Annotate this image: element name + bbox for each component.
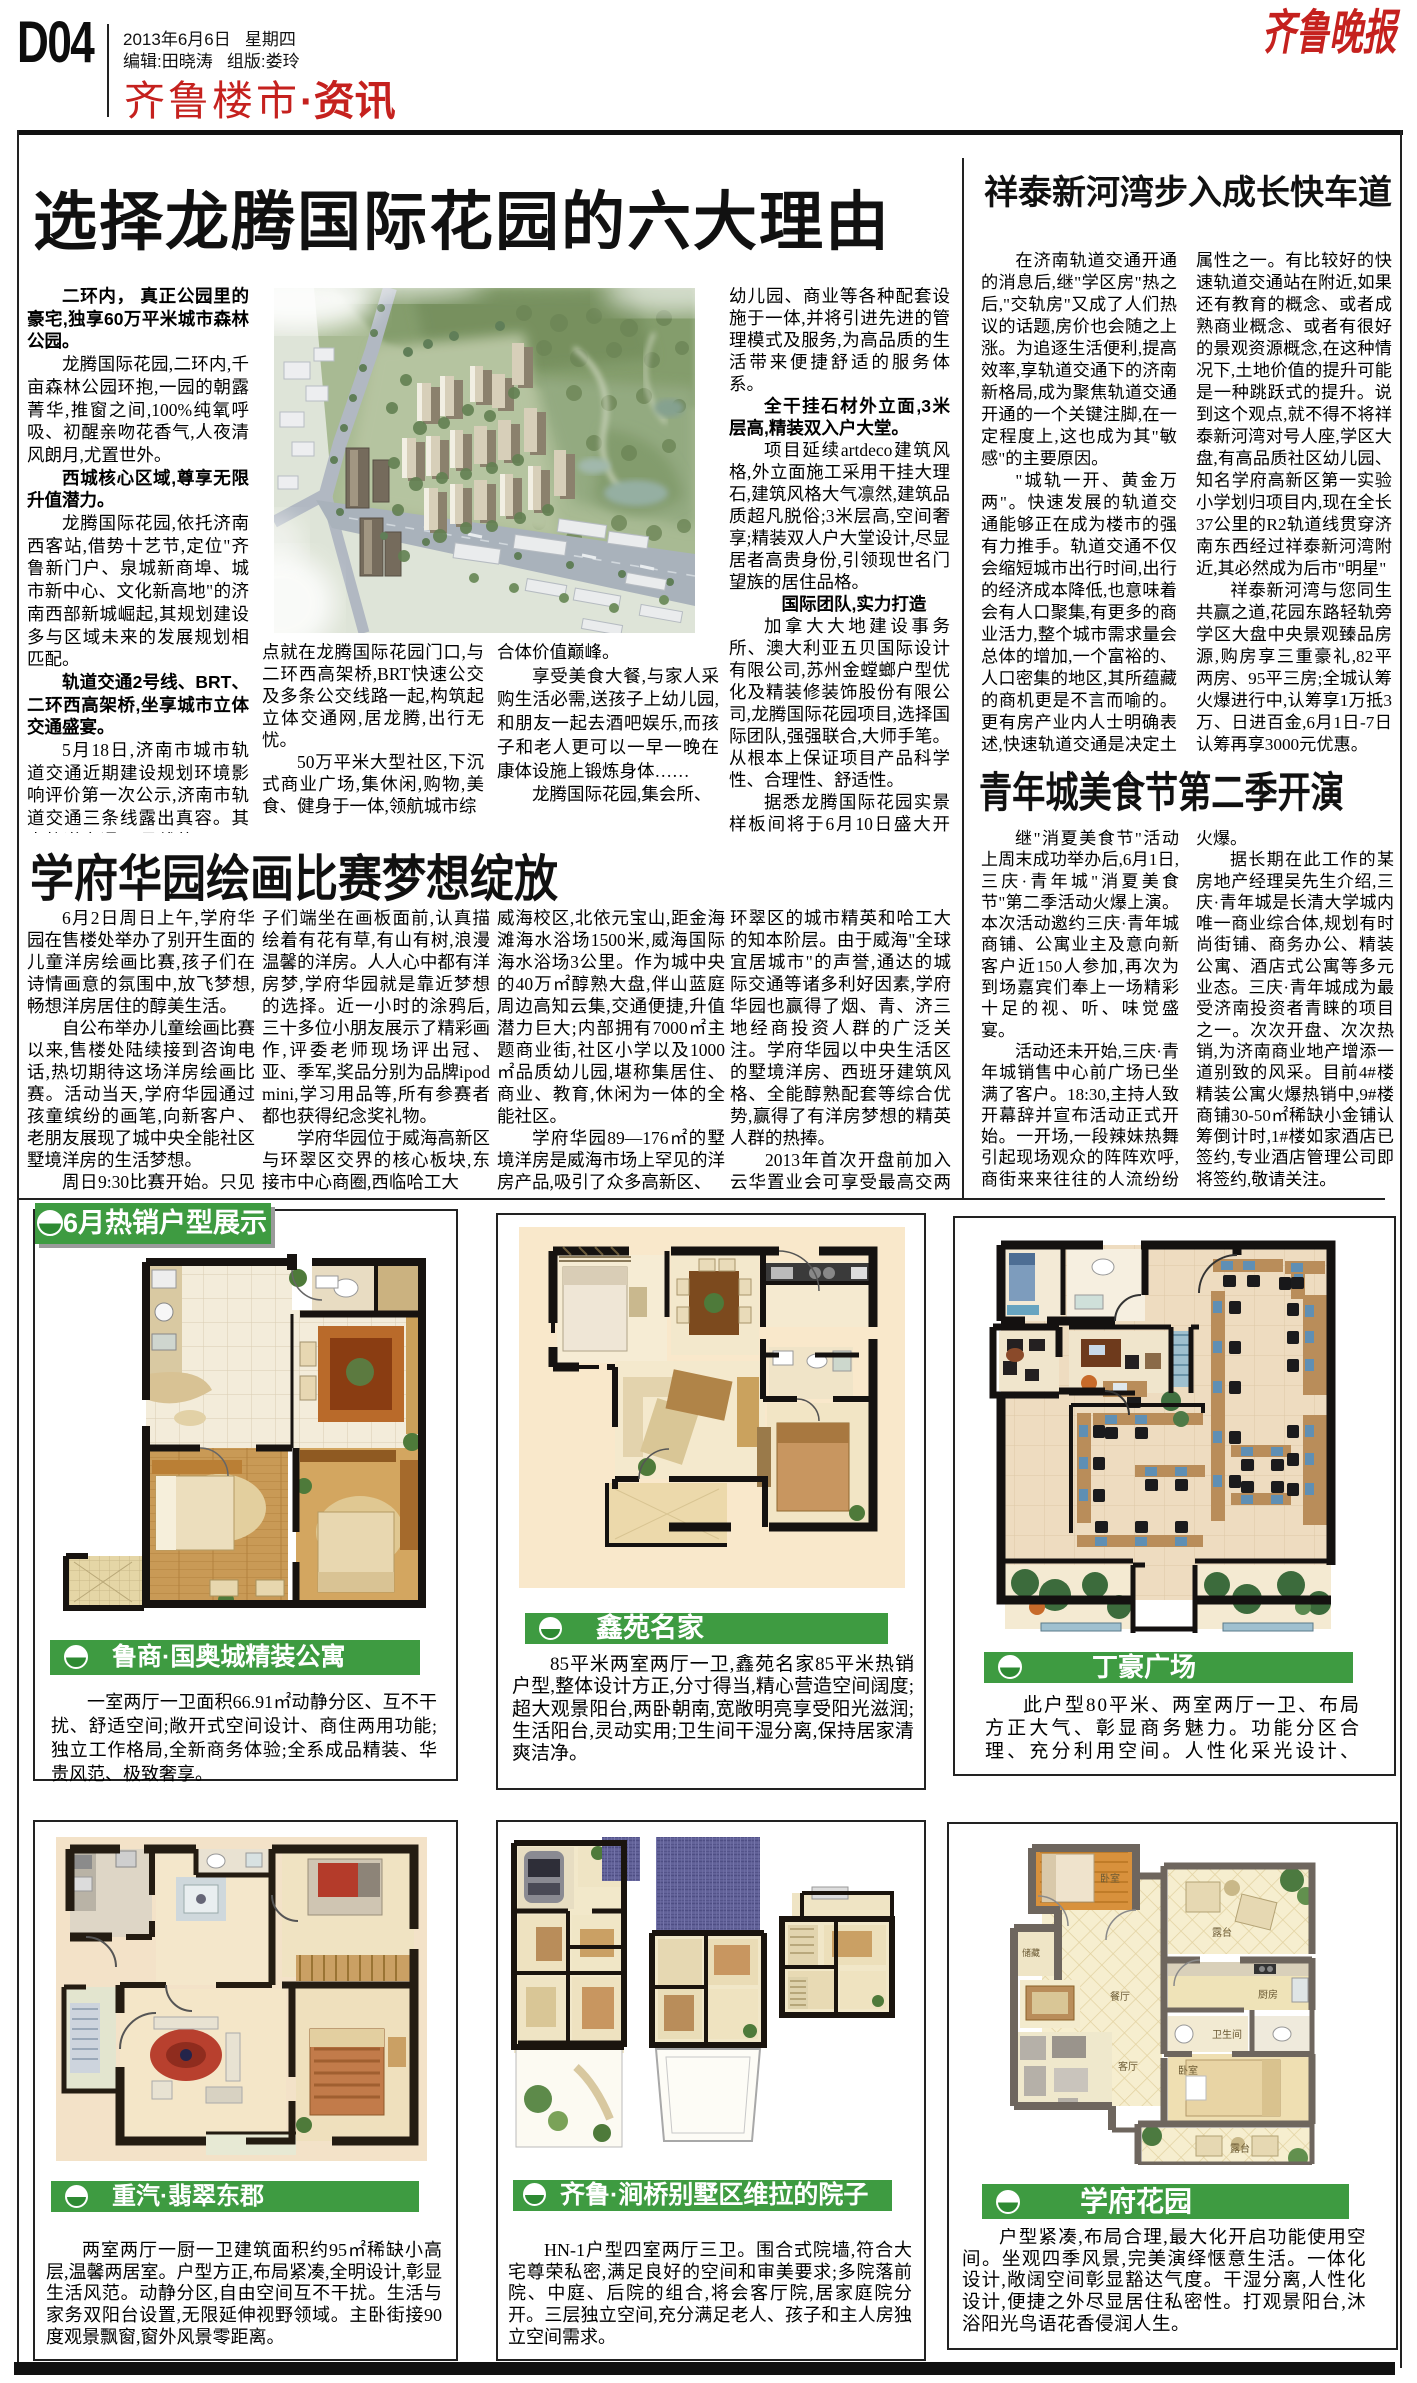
svg-text:餐厅: 餐厅 bbox=[1110, 1990, 1130, 2003]
svg-text:卫生间: 卫生间 bbox=[1212, 2028, 1242, 2041]
svg-text:露台: 露台 bbox=[1212, 1926, 1232, 1939]
svg-text:客厅: 客厅 bbox=[1118, 2060, 1138, 2073]
svg-text:卧室: 卧室 bbox=[1100, 1872, 1120, 1885]
svg-text:储藏: 储藏 bbox=[1022, 1947, 1040, 1958]
svg-text:露台: 露台 bbox=[1230, 2142, 1250, 2155]
svg-text:厨房: 厨房 bbox=[1258, 1988, 1278, 2001]
svg-text:卧室: 卧室 bbox=[1178, 2064, 1198, 2077]
